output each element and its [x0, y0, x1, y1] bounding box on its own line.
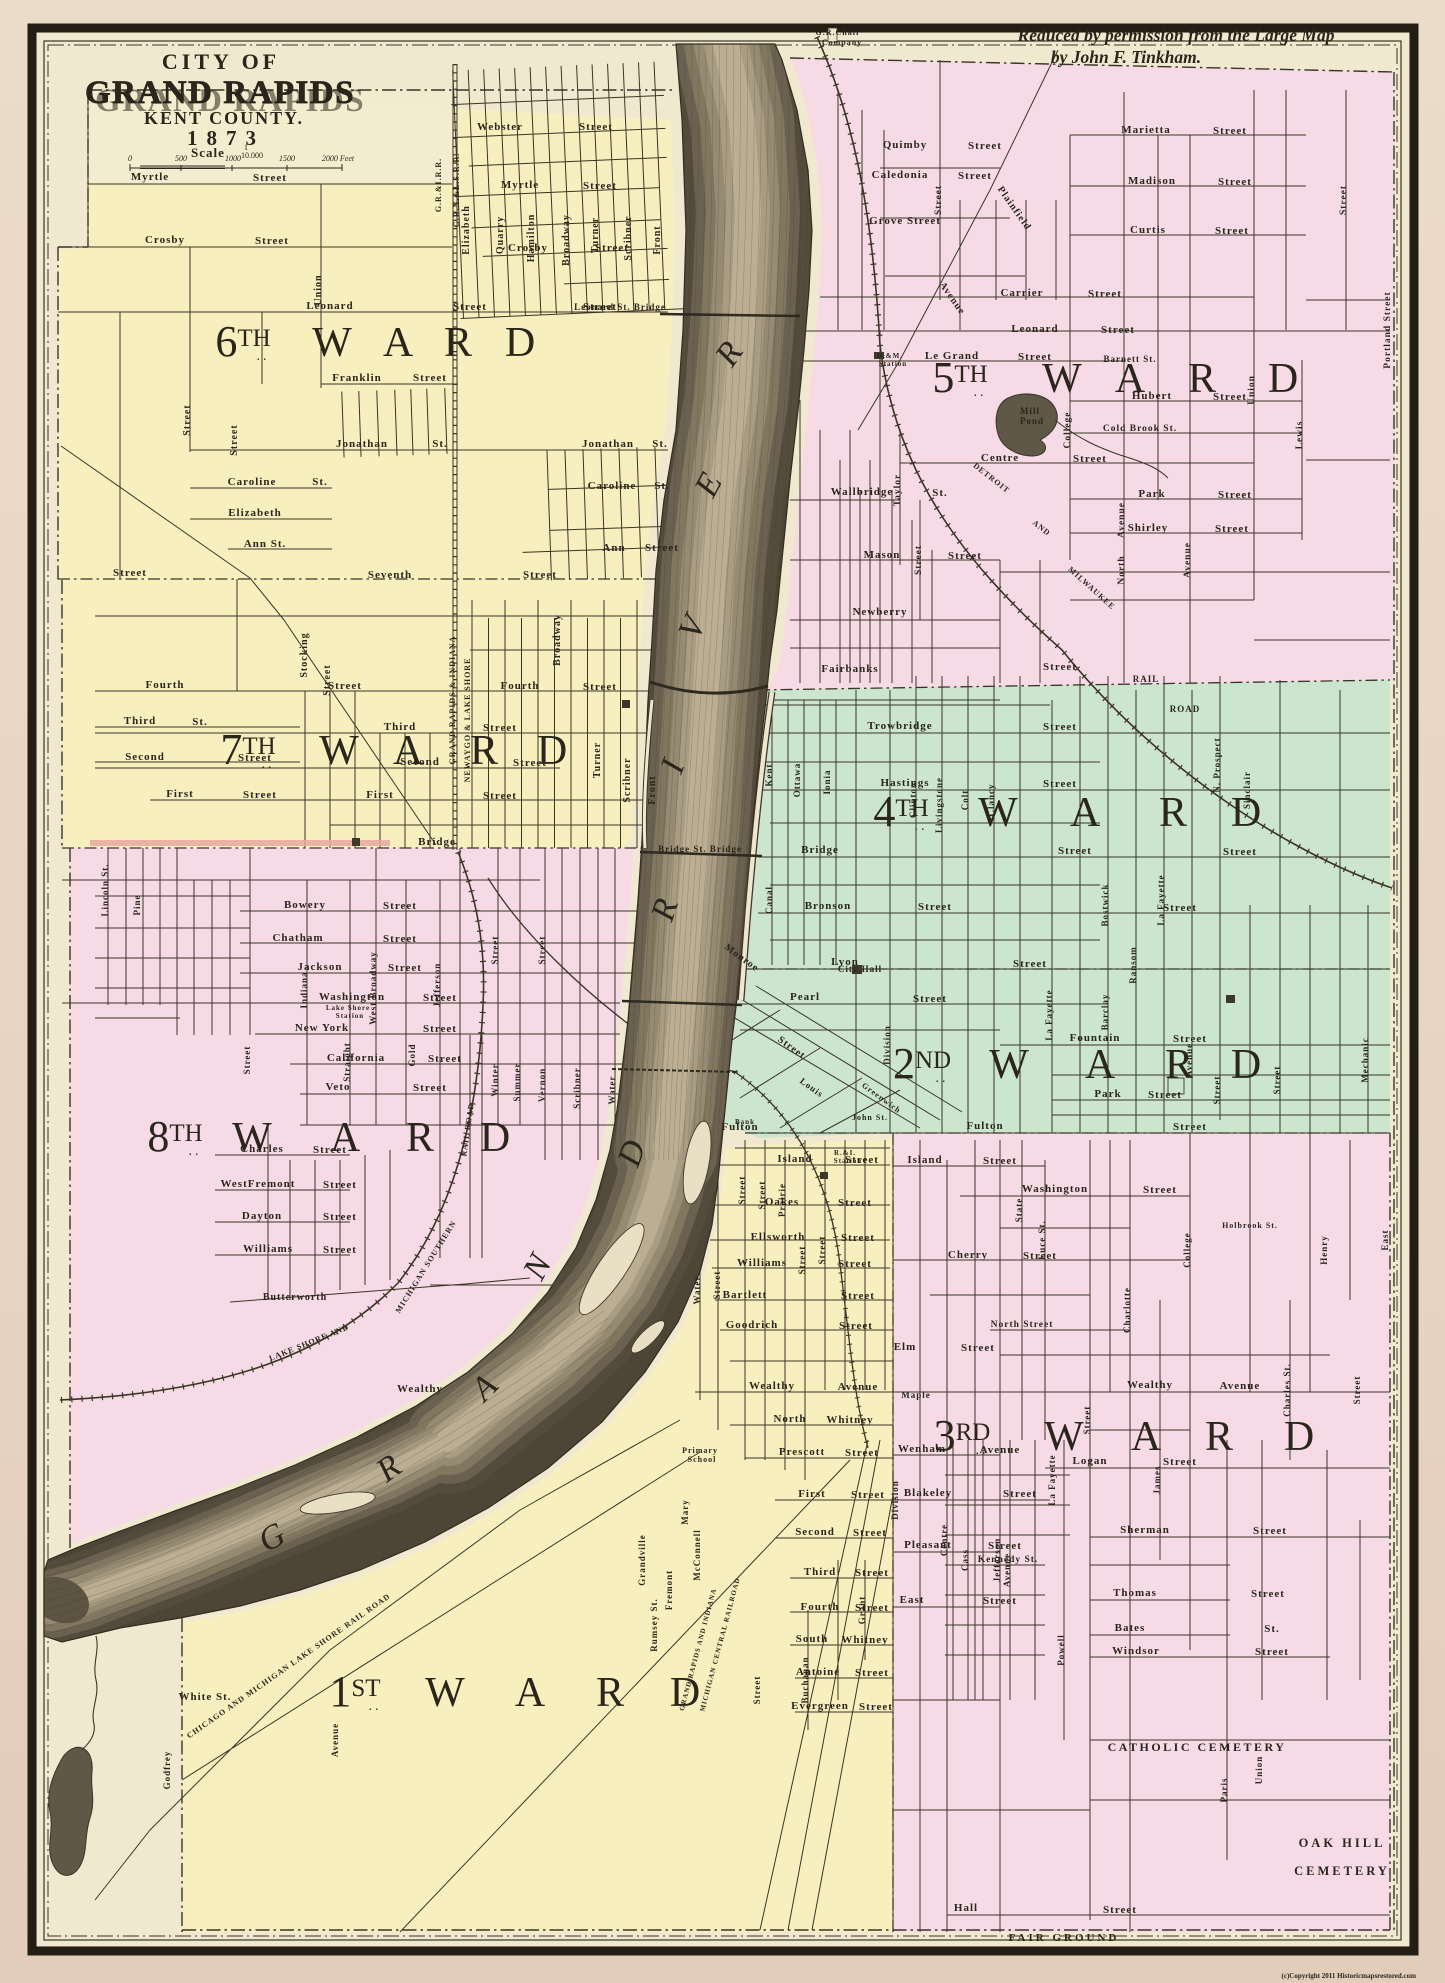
svg-text:Street: Street [1088, 288, 1122, 300]
svg-text:Grove Street: Grove Street [869, 215, 941, 227]
svg-text:Street: Street [1352, 1376, 1362, 1405]
svg-text:Jefferson: Jefferson [432, 963, 442, 1008]
svg-text:A: A [515, 1670, 546, 1716]
svg-text:Jonathan: Jonathan [582, 438, 634, 450]
svg-text:Street: Street [383, 900, 417, 912]
svg-text:Street: Street [983, 1595, 1017, 1607]
svg-text:Island: Island [777, 1153, 812, 1165]
svg-text:..: .. [974, 385, 987, 400]
svg-text:Blakeley: Blakeley [904, 1487, 952, 1499]
svg-text:CEMETERY: CEMETERY [1294, 1864, 1390, 1878]
svg-text:Hubert: Hubert [1132, 390, 1172, 402]
svg-text:Street: Street [797, 1246, 807, 1275]
svg-text:Colt: Colt [960, 790, 970, 811]
svg-text:Street: Street [983, 1155, 1017, 1167]
svg-text:Carrier: Carrier [1000, 287, 1043, 299]
svg-text:Sinclair: Sinclair [1242, 771, 1252, 809]
svg-text:Bostwick: Bostwick [1100, 883, 1110, 926]
svg-text:Broadway: Broadway [552, 614, 563, 666]
svg-text:Ann St.: Ann St. [244, 538, 286, 550]
svg-text:Caroline: Caroline [228, 476, 277, 488]
svg-text:Indiana: Indiana [299, 971, 309, 1008]
svg-text:Thomas: Thomas [1113, 1587, 1157, 1599]
svg-text:Wealthy: Wealthy [397, 1383, 443, 1395]
svg-text:..: .. [915, 819, 928, 834]
svg-text:Street: Street [238, 752, 272, 764]
svg-text:Street: Street [513, 757, 547, 769]
svg-text:Taylor: Taylor [893, 474, 903, 507]
svg-text:Dayton: Dayton [242, 1210, 282, 1222]
svg-text:James: James [1152, 1466, 1162, 1495]
svg-text:Powell: Powell [1056, 1634, 1066, 1666]
svg-text:Street: Street [1043, 661, 1077, 673]
svg-text:D: D [1268, 356, 1298, 402]
svg-text:Newberry: Newberry [852, 606, 907, 618]
svg-text:Fulton: Fulton [966, 1120, 1003, 1132]
svg-text:Le Grand: Le Grand [925, 350, 979, 362]
svg-text:Jackson: Jackson [298, 961, 343, 973]
svg-text:Elizabeth: Elizabeth [461, 205, 472, 255]
svg-text:1500: 1500 [279, 154, 295, 163]
svg-text:John St.: John St. [852, 1113, 888, 1122]
svg-text:Street: Street [323, 1211, 357, 1223]
svg-text:Street: Street [1043, 778, 1077, 790]
svg-text:Caledonia: Caledonia [872, 169, 929, 181]
svg-text:Street: Street [1213, 391, 1247, 403]
svg-text:Ottawa: Ottawa [792, 763, 802, 798]
svg-text:Stocking: Stocking [299, 632, 310, 677]
svg-text:Scribner: Scribner [572, 1067, 582, 1109]
svg-text:Avenue: Avenue [330, 1723, 340, 1757]
svg-text:Street: Street [583, 681, 617, 693]
svg-text:College: College [1063, 411, 1073, 448]
svg-text:Summer: Summer [512, 1063, 522, 1102]
svg-text:Charles St.: Charles St. [1282, 1363, 1292, 1417]
svg-text:St.: St. [1264, 1623, 1280, 1635]
svg-text:Park: Park [1094, 1088, 1121, 1100]
svg-text:Street: Street [483, 722, 517, 734]
svg-text:Street: Street [1223, 846, 1257, 858]
svg-text:La Fayette: La Fayette [1044, 989, 1054, 1040]
svg-text:Street: Street [1212, 1076, 1222, 1105]
svg-text:Madison: Madison [1128, 175, 1176, 187]
svg-text:Leonard St. Bridge: Leonard St. Bridge [574, 302, 666, 312]
svg-text:N. Prospect: N. Prospect [1212, 737, 1222, 792]
svg-text:Scribner: Scribner [622, 757, 633, 802]
svg-text:Wenham: Wenham [898, 1443, 946, 1455]
svg-text:Leonard: Leonard [1011, 323, 1058, 335]
svg-text:St.: St. [312, 476, 328, 488]
svg-text:Street: Street [1218, 176, 1252, 188]
svg-text:Street: Street [255, 235, 289, 247]
svg-text:Street: Street [453, 301, 487, 313]
svg-text:Grandville: Grandville [637, 1534, 647, 1586]
svg-text:Caroline: Caroline [588, 480, 637, 492]
svg-text:First: First [366, 789, 394, 801]
svg-text:Logan: Logan [1073, 1455, 1108, 1467]
svg-text:Williams: Williams [737, 1257, 787, 1269]
svg-text:Street: Street [328, 680, 362, 692]
svg-text:Street: Street [1003, 1488, 1037, 1500]
svg-text:Street: Street [1213, 125, 1247, 137]
svg-text:Street: Street [838, 1197, 872, 1209]
svg-text:Trowbridge: Trowbridge [867, 720, 932, 732]
svg-text:East: East [1380, 1229, 1390, 1250]
svg-text:Street: Street [853, 1527, 887, 1539]
svg-text:Crosby: Crosby [145, 234, 185, 246]
svg-text:Wealthy: Wealthy [749, 1380, 795, 1392]
svg-text:State: State [1014, 1198, 1024, 1223]
svg-text:North Street: North Street [991, 1320, 1054, 1330]
svg-text:Mechanic: Mechanic [1360, 1037, 1370, 1083]
svg-text:OAK HILL: OAK HILL [1299, 1836, 1386, 1850]
svg-text:Street: Street [817, 1236, 827, 1265]
svg-text:Holbrook St.: Holbrook St. [1222, 1221, 1278, 1230]
svg-text:Pine: Pine [132, 895, 142, 916]
svg-text:Water: Water [692, 1276, 702, 1305]
svg-text:Street: Street [537, 936, 547, 965]
svg-text:Turner: Turner [590, 217, 601, 253]
svg-text:Street: Street [934, 185, 944, 215]
svg-text:Centre: Centre [939, 1524, 949, 1556]
svg-text:R.&I.: R.&I. [834, 1149, 856, 1157]
svg-text:Primary: Primary [682, 1446, 718, 1455]
svg-text:Street: Street [1018, 351, 1052, 363]
svg-text:Marietta: Marietta [1121, 124, 1171, 136]
svg-text:GRAND RAPIDS: GRAND RAPIDS [85, 75, 355, 111]
svg-text:Street: Street [948, 550, 982, 562]
svg-text:Street: Street [1173, 1121, 1207, 1133]
svg-text:Street: Street [490, 936, 500, 965]
svg-text:Rumsey St.: Rumsey St. [649, 1598, 659, 1652]
svg-text:Gold: Gold [407, 1043, 417, 1066]
svg-text:R: R [1159, 790, 1187, 836]
svg-text:Elm: Elm [894, 1341, 917, 1353]
svg-text:Avenue: Avenue [1220, 1380, 1261, 1392]
svg-text:Second: Second [795, 1526, 835, 1538]
svg-text:Reduced by permission from the: Reduced by permission from the Large Map [1017, 25, 1335, 45]
svg-text:Webster: Webster [477, 121, 523, 133]
svg-text:Union: Union [313, 274, 324, 305]
svg-text:College: College [1182, 1232, 1192, 1268]
svg-text:Street: Street [958, 170, 992, 182]
svg-text:Mary: Mary [680, 1499, 690, 1525]
svg-text:Washington: Washington [1022, 1183, 1088, 1195]
svg-text:Street: Street [737, 1176, 747, 1205]
svg-text:Prairie: Prairie [777, 1183, 787, 1217]
svg-text:A: A [383, 320, 414, 366]
svg-text:Street: Street [918, 901, 952, 913]
svg-text:Street: Street [1218, 489, 1252, 501]
svg-text:Centre: Centre [981, 452, 1019, 464]
svg-text:Street: Street [757, 1181, 767, 1210]
svg-text:Street: Street [242, 1046, 252, 1075]
svg-text:First: First [166, 788, 194, 800]
svg-text:..: .. [936, 1071, 949, 1086]
svg-text:Street: Street [388, 962, 422, 974]
svg-text:Street: Street [323, 1179, 357, 1191]
svg-text:Clancy: Clancy [986, 784, 996, 817]
svg-text:CITY OF: CITY OF [162, 49, 280, 74]
svg-text:Straight: Straight [342, 1042, 352, 1082]
svg-text:A: A [1085, 1042, 1116, 1088]
svg-text:Street: Street [1163, 902, 1197, 914]
svg-text:A: A [1131, 1414, 1162, 1460]
svg-text:Street: Street [113, 567, 147, 579]
svg-text:Street: Street [855, 1567, 889, 1579]
svg-text:CATHOLIC CEMETERY: CATHOLIC CEMETERY [1108, 1740, 1287, 1754]
svg-text:Ellsworth: Ellsworth [751, 1231, 806, 1243]
svg-text:School: School [688, 1455, 717, 1464]
svg-text:Whitney: Whitney [826, 1414, 873, 1426]
svg-text:McConnell: McConnell [692, 1529, 702, 1581]
svg-text:Street: Street [1073, 453, 1107, 465]
svg-text:Street: Street [383, 933, 417, 945]
svg-text:East: East [900, 1594, 925, 1606]
svg-text:Street: Street [855, 1667, 889, 1679]
svg-text:North: North [1117, 555, 1127, 584]
svg-text:0: 0 [128, 154, 132, 163]
svg-text:Street: Street [323, 1244, 357, 1256]
svg-text:Scribner: Scribner [623, 215, 634, 260]
svg-text:Scale: Scale [191, 145, 225, 160]
svg-text:KENT COUNTY.: KENT COUNTY. [144, 108, 304, 128]
svg-text:Station: Station [336, 1012, 364, 1020]
svg-text:W: W [989, 1042, 1029, 1088]
svg-text:Portland Street: Portland Street [1383, 291, 1393, 368]
svg-text:500: 500 [175, 154, 187, 163]
svg-text:by John F. Tinkham.: by John F. Tinkham. [1051, 47, 1201, 67]
svg-text:Cherry: Cherry [948, 1249, 988, 1261]
svg-text:Street: Street [961, 1342, 995, 1354]
svg-text:Quimby: Quimby [883, 139, 928, 151]
svg-text:Curtis: Curtis [1130, 224, 1166, 236]
svg-text:Hamilton: Hamilton [526, 214, 537, 263]
svg-text:Avenue: Avenue [1117, 502, 1127, 538]
svg-text:R: R [406, 1115, 434, 1161]
svg-text:Fourth: Fourth [146, 679, 185, 691]
svg-text:..: .. [189, 1144, 202, 1159]
svg-text:Elizabeth: Elizabeth [228, 507, 282, 519]
svg-text:South: South [796, 1633, 829, 1645]
svg-text:Street: Street [645, 542, 679, 554]
svg-text:West Broadway: West Broadway [368, 951, 378, 1025]
svg-text:R: R [1188, 356, 1216, 402]
svg-text:W: W [312, 320, 352, 366]
svg-text:Fairbanks: Fairbanks [821, 663, 878, 675]
svg-text:Street: Street [1043, 721, 1077, 733]
svg-text:D: D [505, 320, 535, 366]
svg-text:Seventh: Seventh [368, 569, 412, 581]
svg-text:Union: Union [1254, 1756, 1264, 1785]
svg-text:W: W [1044, 1414, 1084, 1460]
svg-text:Street: Street [859, 1701, 893, 1713]
svg-text:Avenue: Avenue [1002, 1553, 1012, 1587]
svg-text:North: North [773, 1413, 806, 1425]
svg-text:Ransom: Ransom [1128, 946, 1138, 984]
svg-text:First: First [798, 1488, 826, 1500]
svg-text:Vernon: Vernon [537, 1068, 547, 1102]
svg-text:Street: Street [1013, 958, 1047, 970]
svg-text:Street: Street [841, 1290, 875, 1302]
svg-text:Bronson: Bronson [805, 900, 852, 912]
svg-text:Henry: Henry [1319, 1235, 1329, 1265]
svg-text:Jefferson: Jefferson [992, 1538, 1002, 1583]
svg-text:Pearl: Pearl [790, 991, 820, 1003]
svg-text:10.000: 10.000 [241, 151, 263, 160]
svg-text:A: A [1070, 790, 1101, 836]
svg-text:St.: St. [932, 487, 948, 499]
svg-text:Whitney: Whitney [841, 1634, 888, 1646]
svg-text:Barclay: Barclay [1100, 994, 1110, 1031]
svg-text:White St.: White St. [179, 1691, 232, 1703]
svg-text:Wealthy: Wealthy [1127, 1379, 1173, 1391]
svg-text:Bridge: Bridge [801, 844, 839, 856]
svg-text:NEWAYGO & LAKE SHORE: NEWAYGO & LAKE SHORE [463, 658, 472, 783]
svg-text:Bartlett: Bartlett [723, 1289, 768, 1301]
svg-text:Prescott: Prescott [779, 1446, 825, 1458]
svg-text:Street: Street [1082, 1406, 1092, 1435]
svg-text:Street: Street [1148, 1089, 1182, 1101]
svg-text:Quarry: Quarry [495, 216, 506, 254]
svg-text:Butterworth: Butterworth [263, 1292, 327, 1303]
svg-text:Avenue: Avenue [1183, 542, 1193, 578]
svg-text:Charlotte: Charlotte [1122, 1287, 1132, 1333]
svg-text:Lake Shore: Lake Shore [326, 1004, 370, 1012]
svg-text:Street: Street [1215, 225, 1249, 237]
svg-text:Fulton: Fulton [721, 1121, 758, 1133]
svg-text:Street: Street [182, 404, 193, 435]
svg-text:Buchanan: Buchanan [800, 1656, 810, 1703]
svg-text:Franklin: Franklin [332, 372, 382, 384]
svg-text:Ionia: Ionia [822, 769, 832, 794]
svg-text:Grant: Grant [857, 1596, 867, 1625]
svg-text:D.&M.: D.&M. [877, 352, 903, 360]
svg-text:Third: Third [384, 721, 417, 733]
svg-text:Street: Street [243, 789, 277, 801]
svg-text:G.R.Chair: G.R.Chair [816, 28, 861, 37]
svg-text:Street: Street [253, 172, 287, 184]
svg-text:Myrtle: Myrtle [131, 171, 169, 183]
svg-text:New York: New York [295, 1022, 349, 1034]
svg-text:Veto: Veto [326, 1081, 351, 1093]
svg-text:Clinton: Clinton [908, 782, 918, 818]
svg-text:Street: Street [752, 1676, 762, 1705]
svg-text:G.R.&I.R.R.: G.R.&I.R.R. [434, 158, 443, 212]
svg-text:..: .. [257, 349, 270, 364]
svg-text:GRAND RAPIDS & INDIANA: GRAND RAPIDS & INDIANA [448, 636, 457, 765]
svg-text:Street: Street [579, 121, 613, 133]
svg-text:Street: Street [1101, 324, 1135, 336]
svg-text:St.: St. [432, 438, 448, 450]
svg-text:Third: Third [804, 1566, 837, 1578]
svg-text:Street: Street [413, 1082, 447, 1094]
svg-text:Godfrey: Godfrey [162, 1751, 172, 1790]
svg-text:Pond: Pond [1020, 416, 1044, 426]
svg-text:Lincoln St.: Lincoln St. [100, 863, 110, 916]
svg-text:Street: Street [1253, 1525, 1287, 1537]
svg-text:St.: St. [652, 438, 668, 450]
svg-text:Barnett St.: Barnett St. [1104, 354, 1157, 364]
svg-text:Wallbridge: Wallbridge [831, 486, 894, 498]
svg-text:Street: Street [712, 1271, 722, 1300]
svg-text:Street: Street [1272, 1066, 1282, 1095]
svg-text:Street: Street [313, 1144, 347, 1156]
svg-text:Mill: Mill [1020, 406, 1040, 416]
svg-text:W: W [425, 1670, 465, 1716]
svg-text:Winter: Winter [490, 1063, 500, 1096]
svg-text:Sherman: Sherman [1120, 1524, 1170, 1536]
svg-text:Second: Second [400, 756, 440, 768]
svg-text:Fourth: Fourth [501, 680, 540, 692]
svg-text:Park: Park [1138, 488, 1165, 500]
svg-text:Station: Station [834, 1157, 862, 1165]
svg-text:D: D [1231, 1042, 1261, 1088]
svg-text:Livingstone: Livingstone [934, 777, 944, 833]
svg-text:Division: Division [882, 1025, 892, 1065]
svg-text:W: W [319, 728, 359, 774]
svg-text:2000 Feet: 2000 Feet [322, 154, 355, 163]
svg-text:Street: Street [523, 569, 557, 581]
svg-text:Bridge: Bridge [418, 836, 456, 848]
svg-text:Street: Street [1103, 1904, 1137, 1916]
svg-text:Lewis: Lewis [1295, 421, 1305, 450]
svg-text:Kent: Kent [764, 764, 774, 787]
svg-text:Ann: Ann [602, 542, 625, 554]
svg-text:R: R [470, 728, 498, 774]
svg-text:Myrtle: Myrtle [501, 179, 539, 191]
svg-text:Island: Island [907, 1154, 942, 1166]
svg-text:Fremont: Fremont [664, 1570, 674, 1610]
svg-text:Street: Street [838, 1258, 872, 1270]
svg-text:Cass: Cass [960, 1549, 970, 1571]
svg-text:Williams: Williams [243, 1243, 293, 1255]
svg-text:R: R [444, 320, 472, 366]
svg-text:Hastings: Hastings [881, 777, 930, 789]
svg-text:Avenue: Avenue [838, 1381, 879, 1393]
svg-text:D: D [1284, 1414, 1314, 1460]
svg-text:Third: Third [124, 715, 157, 727]
svg-text:Avenue: Avenue [980, 1444, 1021, 1456]
svg-text:Front: Front [652, 225, 663, 254]
svg-text:Goodrich: Goodrich [726, 1319, 779, 1331]
svg-text:R: R [596, 1670, 624, 1716]
svg-text:1000: 1000 [225, 154, 241, 163]
svg-text:Street: Street [841, 1232, 875, 1244]
svg-text:Bridge St. Bridge: Bridge St. Bridge [658, 844, 742, 854]
svg-text:WestFremont: WestFremont [221, 1178, 296, 1190]
svg-text:Mason: Mason [864, 549, 901, 561]
svg-text:FAIR GROUND: FAIR GROUND [1009, 1932, 1120, 1944]
svg-text:D: D [480, 1115, 510, 1161]
svg-text:Street: Street [1143, 1184, 1177, 1196]
svg-text:City Hall: City Hall [838, 964, 882, 974]
svg-text:Street: Street [322, 664, 333, 695]
svg-text:La Fayette: La Fayette [1156, 874, 1166, 925]
svg-text:Chatham: Chatham [272, 932, 323, 944]
svg-text:California: California [327, 1052, 385, 1064]
svg-text:Bowery: Bowery [284, 899, 326, 911]
svg-text:St.: St. [192, 716, 208, 728]
svg-text:G.R.N.&L.S.R.R.: G.R.N.&L.S.R.R. [452, 153, 461, 228]
svg-text:Street: Street [1058, 845, 1092, 857]
svg-text:Front: Front [647, 775, 658, 804]
svg-text:RAIL: RAIL [1133, 674, 1160, 684]
svg-text:Street: Street [851, 1489, 885, 1501]
svg-text:Windsor: Windsor [1112, 1645, 1160, 1657]
svg-text:Cold Brook St.: Cold Brook St. [1103, 424, 1177, 434]
svg-text:Fountain: Fountain [1070, 1032, 1121, 1044]
